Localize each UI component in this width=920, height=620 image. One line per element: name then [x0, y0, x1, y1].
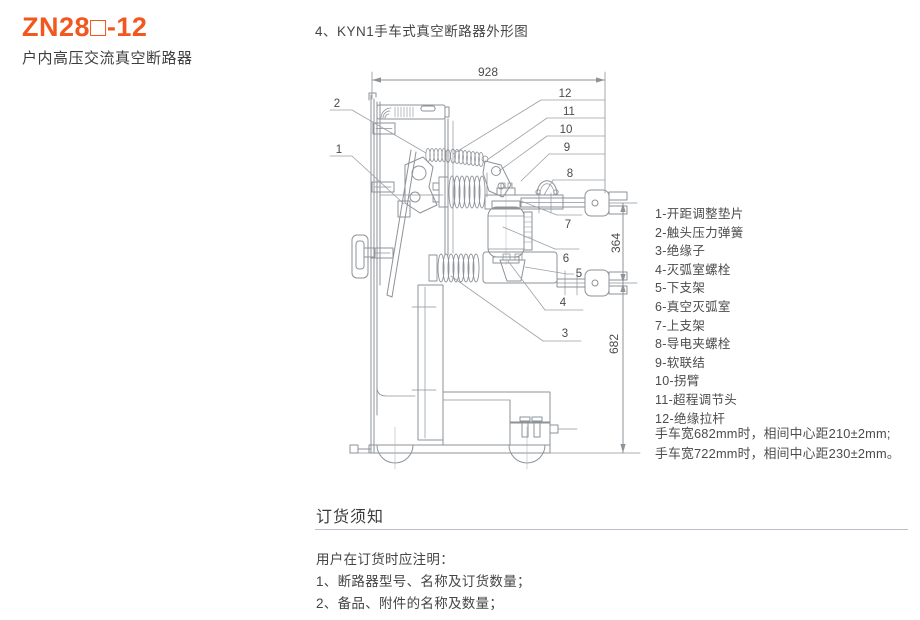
- model-number-title: ZN28□-12: [22, 12, 147, 43]
- figure-title: 4、KYN1手车式真空断路器外形图: [315, 20, 528, 40]
- parts-list-item: 11-超程调节头: [655, 391, 744, 410]
- parts-list-item: 6-真空灭弧室: [655, 298, 744, 317]
- figure-note-line: 手车宽722mm时，相间中心距230±2mm。: [655, 444, 900, 464]
- section-divider: [315, 529, 908, 530]
- parts-legend: 1-开距调整垫片 2-触头压力弹簧 3-绝缘子 4-灭弧室螺栓 5-下支架 6-…: [655, 205, 744, 428]
- callout-label-5: 5: [576, 268, 582, 280]
- callout-label-7: 7: [565, 219, 571, 231]
- upper-insulator: [433, 176, 485, 208]
- contact-pressure-spring: [426, 149, 450, 163]
- parts-list-item: 5-下支架: [655, 279, 744, 298]
- callout-label-3: 3: [562, 328, 568, 340]
- ordering-item: 1、断路器型号、名称及订货数量；: [316, 570, 531, 590]
- callout-label-2: 2: [334, 98, 340, 110]
- ordering-section-title: 订货须知: [316, 503, 384, 527]
- callout-label-8: 8: [567, 168, 573, 180]
- figure-note-line: 手车宽682mm时，相间中心距210±2mm;: [655, 424, 900, 444]
- dim-label-682: 682: [607, 334, 621, 354]
- trolley-handle: [352, 235, 375, 278]
- figure-notes: 手车宽682mm时，相间中心距210±2mm; 手车宽722mm时，相间中心距2…: [655, 424, 900, 463]
- parts-list-item: 3-绝缘子: [655, 242, 744, 261]
- operating-lever: [387, 150, 437, 297]
- parts-list-item: 9-软联结: [655, 354, 744, 373]
- dim-label-364: 364: [609, 233, 623, 253]
- parts-list-item: 2-触头压力弹簧: [655, 224, 744, 243]
- parts-list-item: 7-上支架: [655, 317, 744, 336]
- callout-label-4: 4: [560, 297, 567, 309]
- dimension-right-364-682: 364 682: [607, 203, 637, 453]
- callout-label-11: 11: [563, 106, 575, 118]
- parts-list-item: 10-拐臂: [655, 372, 744, 391]
- parts-list-item: 8-导电夹螺栓: [655, 335, 744, 354]
- frame-plates: [380, 119, 506, 265]
- callout-label-6: 6: [563, 253, 569, 265]
- parts-list-item: 4-灭弧室螺栓: [655, 261, 744, 280]
- callout-label-1: 1: [336, 144, 342, 156]
- ordering-item: 2、备品、附件的名称及数量；: [316, 592, 503, 612]
- parts-list-item: 1-开距调整垫片: [655, 205, 744, 224]
- model-subtitle: 户内高压交流真空断路器: [22, 47, 193, 68]
- front-panel: [350, 93, 395, 453]
- callout-label-9: 9: [564, 142, 570, 154]
- top-housing-band: [377, 105, 449, 119]
- trolley-base: [350, 285, 640, 469]
- breaker-outline-drawing: 928 364 682: [325, 55, 665, 475]
- ordering-intro: 用户在订货时应注明：: [316, 548, 454, 568]
- callout-label-12: 12: [559, 88, 572, 100]
- lower-support-arm: [483, 252, 627, 296]
- callout-label-10: 10: [560, 124, 573, 136]
- dim-label-928: 928: [478, 65, 498, 79]
